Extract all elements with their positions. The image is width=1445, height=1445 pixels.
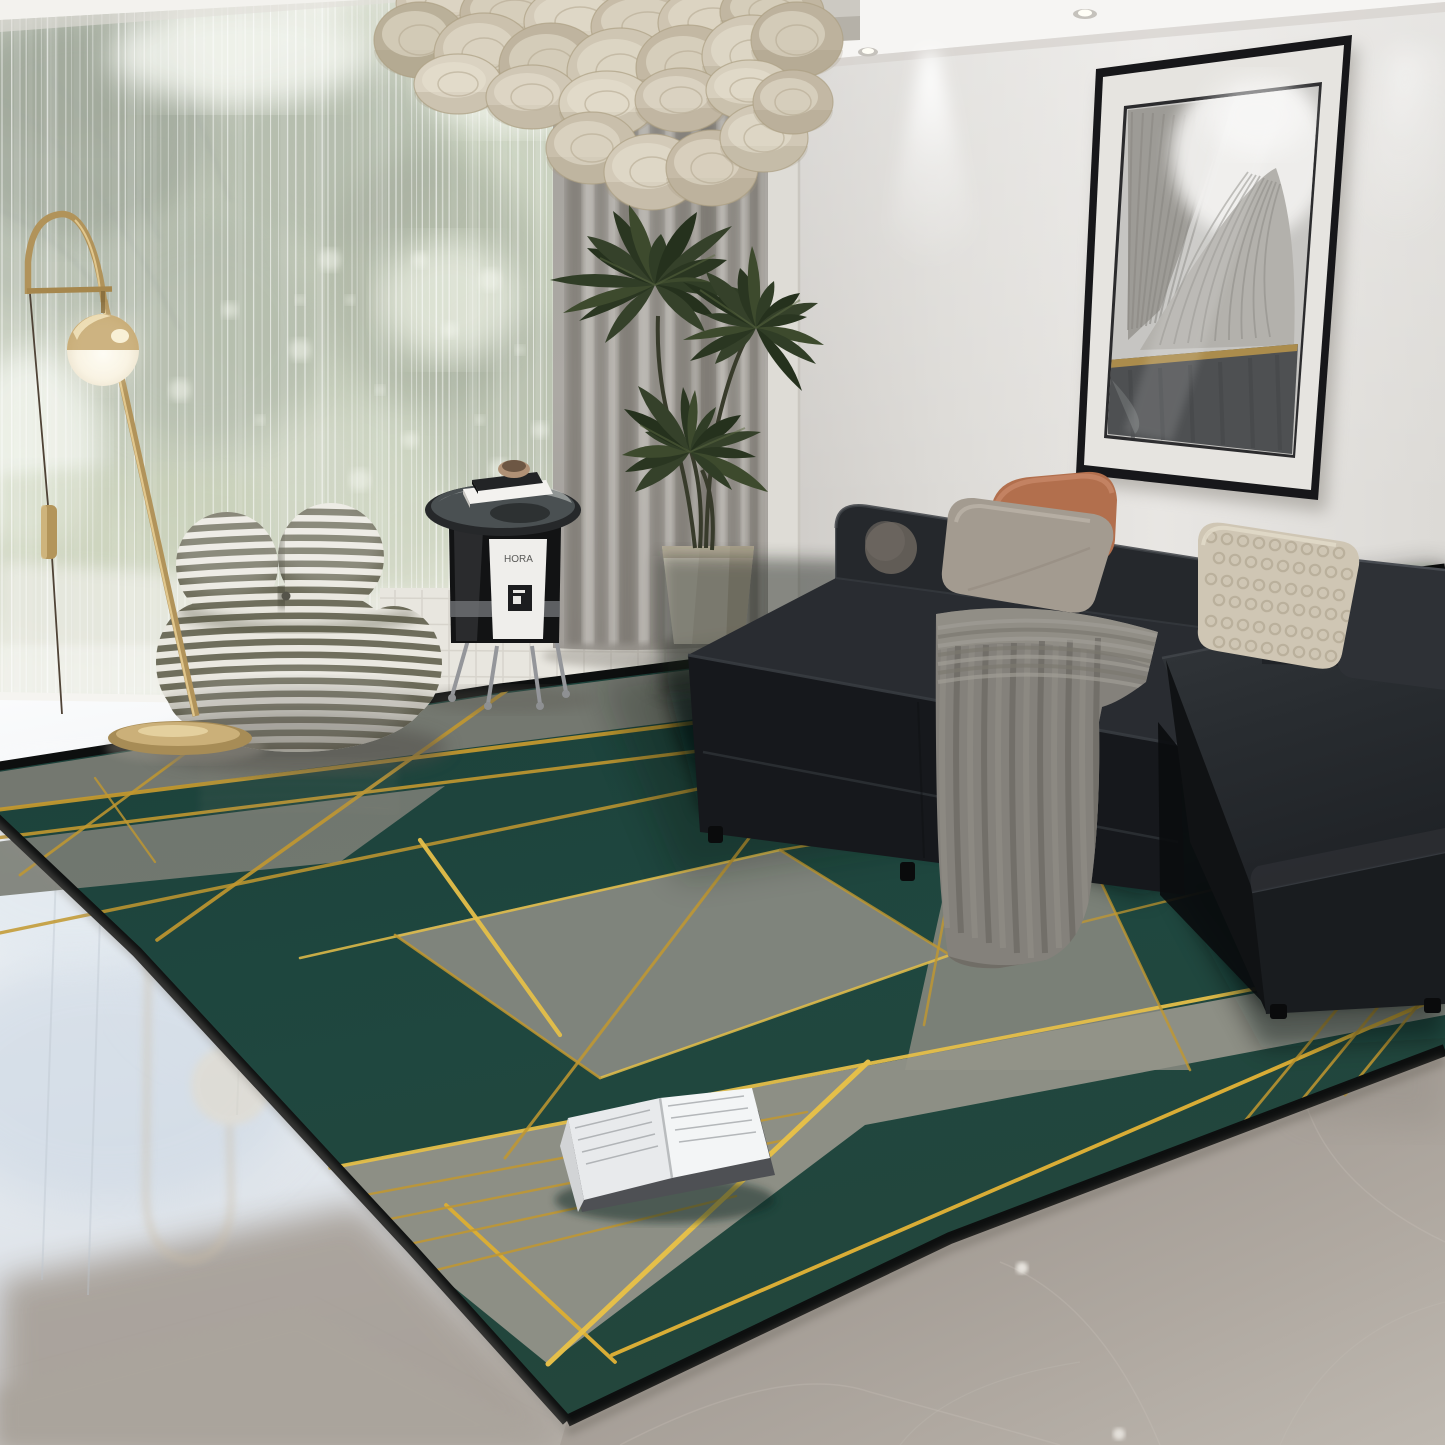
svg-text:HORA: HORA [504, 554, 533, 565]
